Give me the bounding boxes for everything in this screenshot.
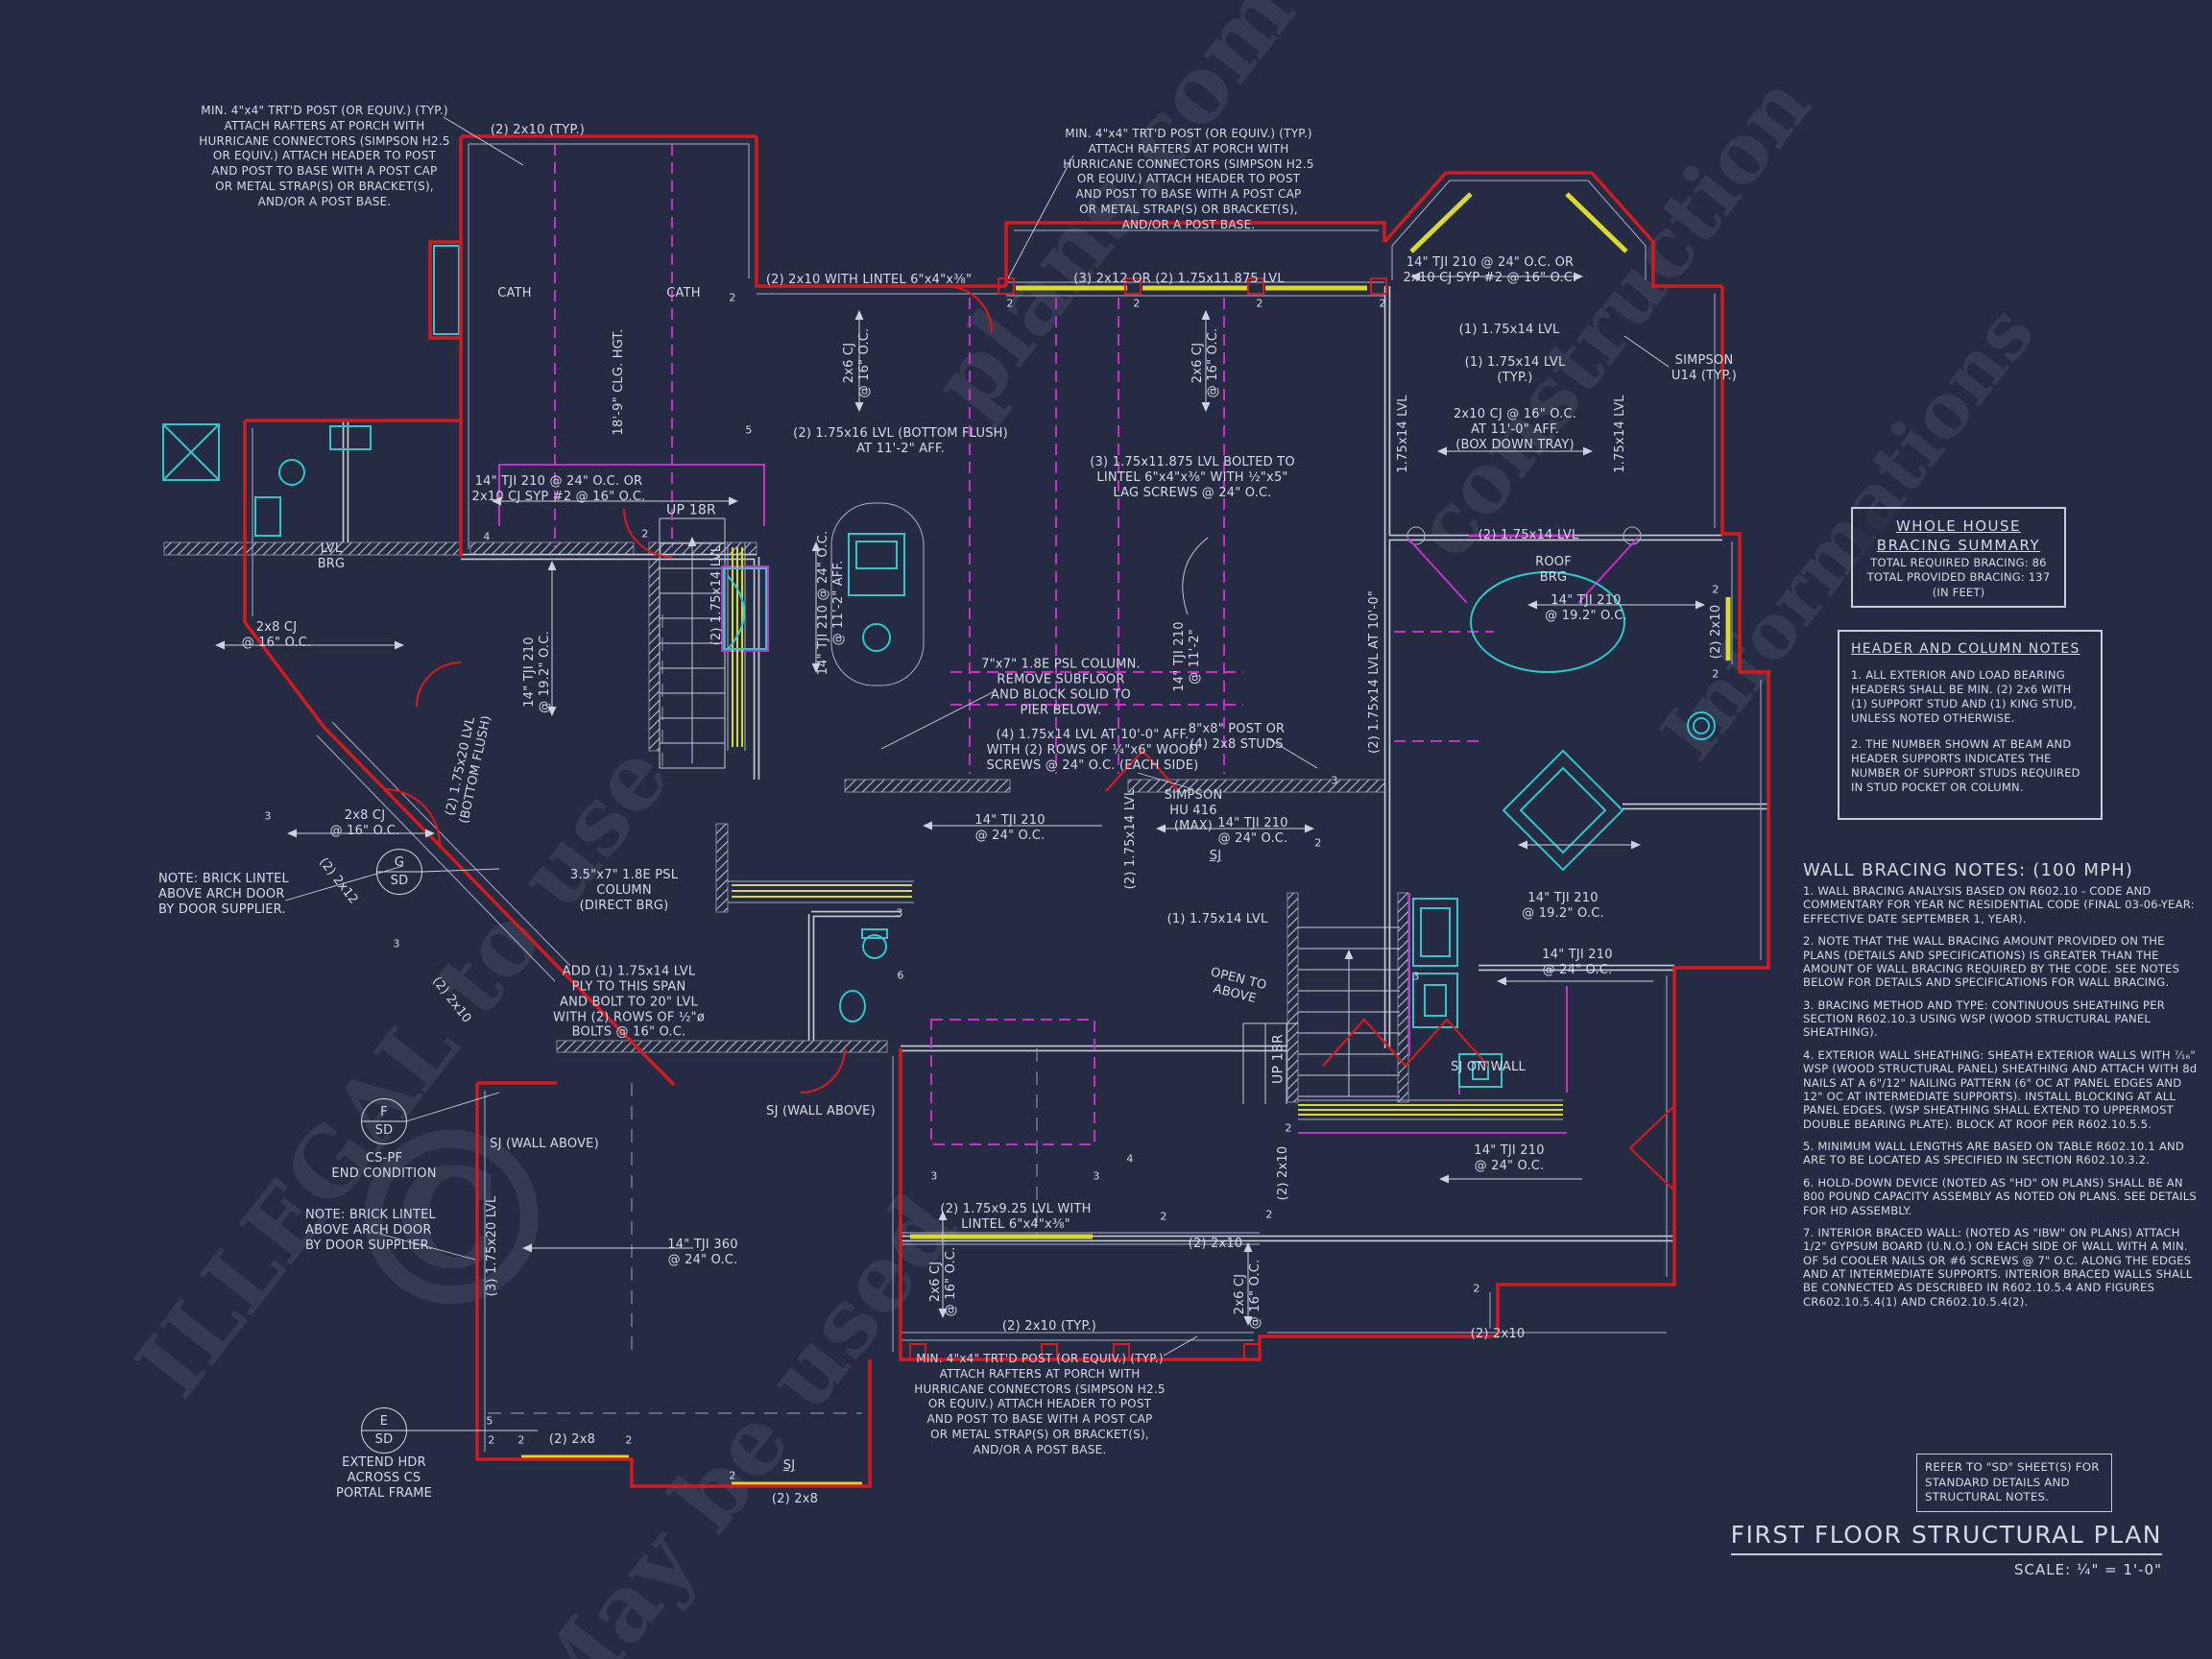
plan-label: 2 xyxy=(641,527,648,540)
plan-label: 2x8 CJ @ 16" O.C. xyxy=(330,808,400,839)
plan-label: E SD xyxy=(361,1407,407,1454)
plan-label: 3 xyxy=(1093,1169,1099,1182)
plan-label: SJ xyxy=(783,1458,796,1474)
plan-label: (2) 1.75x9.25 LVL WITH LINTEL 6"x4"x⅜" xyxy=(940,1202,1091,1233)
hurricane-note-top-left: MIN. 4"x4" TRT'D POST (OR EQUIV.) (TYP.)… xyxy=(192,104,457,210)
bracing-summary-title-line2: BRACING SUMMARY xyxy=(1859,536,2058,555)
wall-bracing-note: 3. BRACING METHOD AND TYPE: CONTINUOUS S… xyxy=(1803,998,2199,1040)
plan-label: (2) 2x10 xyxy=(1276,1146,1291,1201)
plan-label: 14" TJI 210 @ 11'-2" xyxy=(1172,621,1203,691)
plan-label: 2 xyxy=(729,291,735,303)
bracing-summary-lines: TOTAL REQUIRED BRACING: 86TOTAL PROVIDED… xyxy=(1859,556,2058,601)
wall-bracing-note: 4. EXTERIOR WALL SHEATHING: SHEATH EXTER… xyxy=(1803,1048,2199,1131)
plan-label: (2) 2x12 xyxy=(315,855,360,907)
wall-bracing-note: 7. INTERIOR BRACED WALL: (NOTED AS "IBW"… xyxy=(1803,1226,2199,1309)
plan-label: SJ ON WALL xyxy=(1451,1060,1526,1075)
plan-label: CATH xyxy=(497,286,531,301)
hurricane-note-top-center: MIN. 4"x4" TRT'D POST (OR EQUIV.) (TYP.)… xyxy=(1045,127,1333,233)
bracing-summary-line: TOTAL PROVIDED BRACING: 137 xyxy=(1859,570,2058,586)
plan-label: (2) 1.75x14 LVL AT 10'-0" xyxy=(1367,590,1382,754)
plan-label: 14" TJI 210 @ 24" O.C. xyxy=(1474,1143,1544,1174)
plan-label: 2x6 CJ @ 16" O.C. xyxy=(1233,1260,1263,1330)
plan-label: F SD xyxy=(361,1098,407,1144)
plan-label: 14" TJI 210 @ 24" O.C. xyxy=(1217,816,1287,847)
plan-label: (3) 2x12 OR (2) 1.75x11.875 LVL xyxy=(1073,272,1285,287)
plan-label: (4) 1.75x14 LVL AT 10'-0" AFF. WITH (2) … xyxy=(987,728,1199,774)
wall-bracing-note: 5. MINIMUM WALL LENGTHS ARE BASED ON TAB… xyxy=(1803,1140,2199,1167)
plan-label: 14" TJI 210 @ 24" O.C. xyxy=(1542,948,1612,978)
plan-label: 5 xyxy=(745,423,752,436)
plan-label: (2) 1.75x16 LVL (BOTTOM FLUSH) AT 11'-2"… xyxy=(793,426,1008,457)
sheet-title: FIRST FLOOR STRUCTURAL PLAN xyxy=(1731,1521,2162,1555)
plan-label: (2) 2x10 (TYP.) xyxy=(1002,1319,1096,1334)
plan-label: 2 xyxy=(1379,297,1385,309)
plan-label: ROOF BRG xyxy=(1535,555,1572,586)
plan-label: 4 xyxy=(483,530,490,542)
plan-label: LVL BRG xyxy=(318,541,346,572)
plan-label: 2 xyxy=(1314,836,1321,849)
plan-label: 3 xyxy=(1412,970,1419,982)
plan-label: 2 xyxy=(1473,1282,1479,1294)
plan-label: (2) 2x10 xyxy=(428,974,473,1026)
wall-bracing-note: 6. HOLD-DOWN DEVICE (NOTED AS "HD" ON PL… xyxy=(1803,1176,2199,1217)
plan-label: (2) 2x10 xyxy=(1189,1237,1243,1252)
plan-label: (2) 1.75x14 LVL xyxy=(709,545,725,646)
plan-label: UP 18R xyxy=(1270,1034,1286,1084)
plan-label: 14" TJI 210 @ 19.2" O.C. xyxy=(1545,593,1627,624)
plan-label: 2 xyxy=(488,1433,494,1446)
plan-label: (1) 1.75x14 LVL xyxy=(1459,323,1560,338)
plan-label: SJ xyxy=(1210,849,1222,864)
plan-label: 3.5"x7" 1.8E PSL COLUMN (DIRECT BRG) xyxy=(570,868,678,914)
plan-label: 2x6 CJ @ 16" O.C. xyxy=(1190,328,1221,398)
plan-label: 3 xyxy=(896,906,902,919)
plan-label: SIMPSON HU 416 (MAX) xyxy=(1165,788,1223,834)
plan-label: 2x6 CJ @ 16" O.C. xyxy=(928,1247,959,1317)
plan-label: (2) 2x8 xyxy=(772,1492,818,1507)
plan-label: 3 xyxy=(930,1169,937,1182)
plan-label: G SD xyxy=(376,849,422,895)
plan-label: (2) 2x10 WITH LINTEL 6"x4"x⅜" xyxy=(766,273,972,288)
plan-label: (3) 1.75x11.875 LVL BOLTED TO LINTEL 6"x… xyxy=(1090,455,1295,501)
whole-house-bracing-summary: WHOLE HOUSE BRACING SUMMARY TOTAL REQUIR… xyxy=(1851,507,2066,608)
plan-label: 1.75x14 LVL xyxy=(1396,395,1411,472)
plan-label: 5 xyxy=(486,1414,493,1427)
plan-label: SIMPSON U14 (TYP.) xyxy=(1671,353,1737,384)
bracing-summary-line: TOTAL REQUIRED BRACING: 86 xyxy=(1859,556,2058,571)
header-column-notes-title: HEADER AND COLUMN NOTES xyxy=(1851,641,2089,657)
plan-label: 8"x8" POST OR (4) 2x8 STUDS xyxy=(1189,722,1286,753)
plan-label: 2 xyxy=(517,1433,524,1446)
header-column-note: 2. THE NUMBER SHOWN AT BEAM AND HEADER S… xyxy=(1851,737,2089,795)
plan-label: 14" TJI 210 @ 19.2" O.C. xyxy=(522,631,553,713)
plan-label: 2x10 CJ @ 16" O.C. AT 11'-0" AFF. (BOX D… xyxy=(1454,407,1576,453)
plan-label: 14" TJI 210 @ 19.2" O.C. xyxy=(1522,891,1604,922)
plan-label: SJ (WALL ABOVE) xyxy=(766,1104,876,1119)
wall-bracing-note: 1. WALL BRACING ANALYSIS BASED ON R602.1… xyxy=(1803,884,2199,926)
plan-label: 2 xyxy=(1133,297,1140,309)
plan-label: 2 xyxy=(1712,667,1719,680)
plan-label: 7"x7" 1.8E PSL COLUMN. REMOVE SUBFLOOR A… xyxy=(981,657,1141,717)
plan-label: (2) 2x8 xyxy=(549,1432,595,1448)
plan-label: (2) 1.75x14 LVL xyxy=(1123,789,1139,890)
plan-label: 2 xyxy=(1265,1208,1272,1220)
plan-label: 14" TJI 360 @ 24" O.C. xyxy=(667,1238,737,1268)
plan-label: 14" TJI 210 @ 24" O.C. OR 2x10 CJ SYP #2… xyxy=(472,474,646,505)
plan-label: 14" TJI 210 @ 24" O.C. xyxy=(974,813,1045,844)
plan-label: 1.75x14 LVL xyxy=(1613,395,1628,472)
plan-label: NOTE: BRICK LINTEL ABOVE ARCH DOOR BY DO… xyxy=(305,1208,436,1254)
plan-label: 3 xyxy=(1331,774,1337,786)
header-column-notes-items: 1. ALL EXTERIOR AND LOAD BEARING HEADERS… xyxy=(1851,668,2089,795)
plan-label: EXTEND HDR ACROSS CS PORTAL FRAME xyxy=(336,1455,432,1502)
plan-label: (2) 1.75x14 LVL xyxy=(1479,528,1579,543)
plan-label: 6 xyxy=(897,969,903,981)
plan-label: 14" TJI 210 @ 24" O.C. @ 11'-2" AFF. xyxy=(816,531,847,676)
wall-bracing-notes: WALL BRACING NOTES: (100 MPH) 1. WALL BR… xyxy=(1803,860,2199,1317)
plan-label: ADD (1) 1.75x14 LVL PLY TO THIS SPAN AND… xyxy=(553,964,705,1040)
plan-label: (2) 2x10 xyxy=(1709,605,1724,660)
plan-label: 2 xyxy=(729,1469,735,1481)
plan-label: (2) 2x10 xyxy=(1471,1327,1526,1342)
plan-label: 2 xyxy=(625,1433,632,1446)
plan-label: 3 xyxy=(264,809,271,822)
plan-label: OPEN TO ABOVE xyxy=(1205,965,1268,1008)
plan-label: 4 xyxy=(1126,1152,1133,1165)
plan-label: 2 xyxy=(1256,297,1262,309)
header-column-note: 1. ALL EXTERIOR AND LOAD BEARING HEADERS… xyxy=(1851,668,2089,726)
refer-note: REFER TO "SD" SHEET(S) FOR STANDARD DETA… xyxy=(1916,1454,2112,1512)
plan-label: 2x6 CJ @ 16" O.C. xyxy=(842,328,873,398)
plan-label: (2) 2x10 (TYP.) xyxy=(491,123,585,138)
plan-label: (2) 1.75x20 LVL (BOTTOM FLUSH) xyxy=(443,711,495,826)
plan-label: CS-PF END CONDITION xyxy=(331,1151,436,1182)
plan-label: 14" TJI 210 @ 24" O.C. OR 2x10 CJ SYP #2… xyxy=(1404,255,1577,286)
plan-label: UP 18R xyxy=(666,502,716,518)
plan-label: 2 xyxy=(1285,1121,1291,1134)
bracing-summary-title-line1: WHOLE HOUSE xyxy=(1859,517,2058,536)
plan-label: 2 xyxy=(1712,583,1719,595)
plan-label: (1) 1.75x14 LVL (TYP.) xyxy=(1465,355,1566,386)
sheet-scale: SCALE: ¼" = 1'-0" xyxy=(1632,1561,2162,1578)
drawing-sheet: plans.comconstructionInformationsILLEGAL… xyxy=(0,0,2212,1659)
plan-label: (1) 1.75x14 LVL xyxy=(1167,912,1268,927)
header-column-notes: HEADER AND COLUMN NOTES 1. ALL EXTERIOR … xyxy=(1838,630,2103,820)
plan-label: 3 xyxy=(393,937,399,950)
plan-label: (3) 1.75x20 LVL xyxy=(485,1196,500,1297)
wall-bracing-notes-items: 1. WALL BRACING ANALYSIS BASED ON R602.1… xyxy=(1803,884,2199,1309)
plan-label: 18'-9" CLG. HGT. xyxy=(612,329,627,436)
bracing-summary-line: (IN FEET) xyxy=(1859,586,2058,601)
title-block: FIRST FLOOR STRUCTURAL PLAN SCALE: ¼" = … xyxy=(1632,1521,2162,1578)
hurricane-note-bottom: MIN. 4"x4" TRT'D POST (OR EQUIV.) (TYP.)… xyxy=(901,1352,1179,1458)
plan-label: 2x8 CJ @ 16" O.C. xyxy=(242,620,312,651)
plan-label: CATH xyxy=(666,286,700,301)
plan-label: NOTE: BRICK LINTEL ABOVE ARCH DOOR BY DO… xyxy=(158,872,289,918)
plan-label: 2 xyxy=(1160,1210,1166,1222)
plan-label: SJ (WALL ABOVE) xyxy=(490,1137,599,1152)
wall-bracing-notes-title: WALL BRACING NOTES: (100 MPH) xyxy=(1803,860,2199,880)
wall-bracing-note: 2. NOTE THAT THE WALL BRACING AMOUNT PRO… xyxy=(1803,934,2199,990)
plan-label: 2 xyxy=(1006,297,1013,309)
